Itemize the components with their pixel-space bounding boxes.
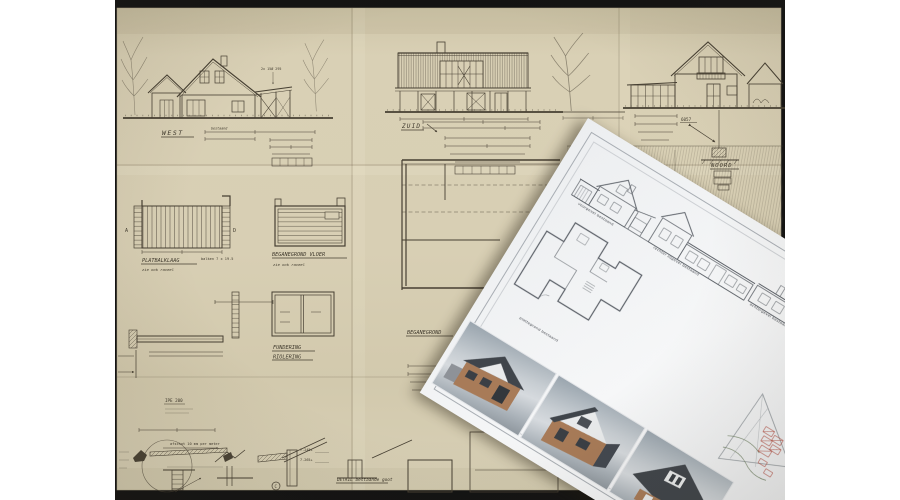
- west-label: WEST: [162, 129, 184, 137]
- beganegrond-vloer-note: zie ook raveel: [273, 262, 305, 267]
- cad-plattegrond-plan: [514, 212, 647, 338]
- cad-voorgevel-label: voorgevel bestaand: [577, 201, 615, 227]
- zuid-label: ZUID: [401, 123, 421, 130]
- beganegrond-label: BEGANEGROND: [407, 330, 441, 336]
- platbalklaag-note2: zie ook raveel: [142, 267, 174, 272]
- cad-achtergevel-label: achtergevel bestaand: [749, 301, 785, 329]
- platbalklaag-note: balken 7 x 19.5: [201, 257, 233, 261]
- detail-goot-label: DETAIL bestaande goot: [336, 477, 393, 483]
- riolering-label: RIOLERING: [273, 355, 301, 361]
- platbalklaag-label: PLATBALKLAAG: [142, 258, 179, 264]
- map-red-parcels: [745, 426, 785, 477]
- west-anchor-note: 2x 15Ø 295: [261, 66, 281, 71]
- west-bestaand-note: bestaand: [211, 127, 228, 131]
- platbalklaag-marker-a: A: [125, 228, 128, 234]
- platbalklaag-marker-d: D: [233, 228, 236, 234]
- cad-voorgevel-elevation: [571, 158, 672, 242]
- level-2-label: 7.265+: [300, 458, 313, 462]
- fundering-label: FUNDERING: [273, 345, 301, 351]
- cad-zijgevel-label: rechter zijgevel bestaand: [652, 245, 700, 277]
- beganegrond-vloer-label: BEGANEGROND VLOER: [272, 252, 325, 258]
- blueprint-photo: WEST bestaand 2x 15Ø 295: [115, 0, 785, 500]
- level-1-label: 7.245+: [300, 448, 313, 452]
- afschot-note: afschot 10 mm per meter: [170, 442, 221, 446]
- noord-dim-6057: 6057: [681, 117, 692, 122]
- ipe-beam-label: IPE 200: [165, 398, 183, 403]
- cad-cadastral-map: [715, 390, 785, 493]
- cad-plattegrond-label: plattegrond bestaand: [519, 315, 560, 343]
- page: WEST bestaand 2x 15Ø 295: [0, 0, 900, 500]
